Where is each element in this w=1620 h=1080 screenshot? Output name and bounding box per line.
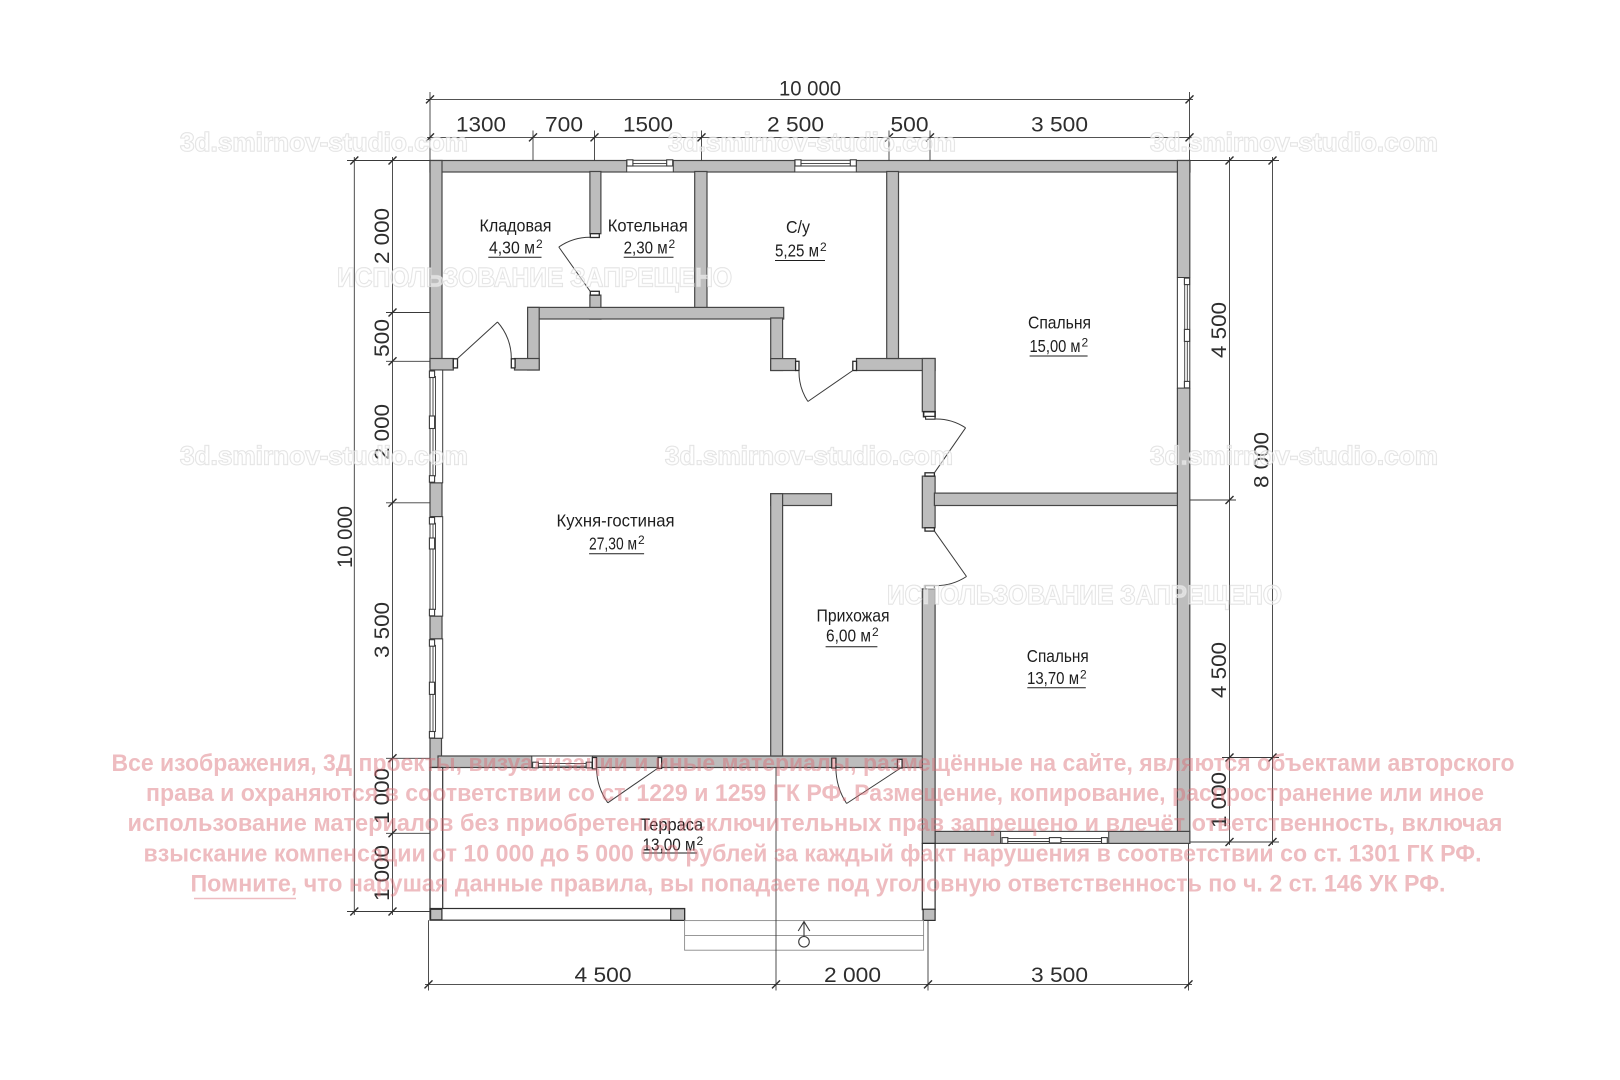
- svg-text:3d.smirnov-studio.com: 3d.smirnov-studio.com: [1150, 441, 1438, 471]
- svg-text:Спальня: Спальня: [1027, 646, 1089, 666]
- svg-text:4 500: 4 500: [1208, 642, 1231, 698]
- svg-text:4 500: 4 500: [575, 964, 632, 987]
- svg-text:взыскание компенсации от 10 00: взыскание компенсации от 10 000 до 5 000…: [144, 841, 1482, 868]
- svg-text:3d.smirnov-studio.com: 3d.smirnov-studio.com: [668, 127, 956, 157]
- svg-text:использование материалов без п: использование материалов без приобретени…: [128, 810, 1503, 837]
- svg-text:5,25 м: 5,25 м: [775, 241, 819, 261]
- svg-text:2 000: 2 000: [371, 208, 394, 264]
- svg-text:2: 2: [1082, 336, 1089, 350]
- svg-text:права и охраняются в соответст: права и охраняются в соответствии со ст.…: [146, 780, 1484, 807]
- svg-text:3d.smirnov-studio.com: 3d.smirnov-studio.com: [1150, 127, 1438, 157]
- svg-text:3d.smirnov-studio.com: 3d.smirnov-studio.com: [665, 441, 953, 471]
- svg-text:3d.smirnov-studio.com: 3d.smirnov-studio.com: [180, 127, 468, 157]
- svg-text:Прихожая: Прихожая: [817, 606, 890, 626]
- svg-text:13,70 м: 13,70 м: [1027, 668, 1079, 688]
- svg-text:2: 2: [820, 240, 827, 254]
- svg-text:10 000: 10 000: [779, 78, 841, 101]
- svg-text:2: 2: [638, 533, 645, 547]
- svg-text:Помните, что нарушая данные пр: Помните, что нарушая данные правила, вы …: [191, 871, 1446, 898]
- svg-text:3 500: 3 500: [1031, 114, 1088, 137]
- svg-text:2 000: 2 000: [824, 964, 881, 987]
- svg-text:2: 2: [872, 625, 879, 639]
- svg-text:Все изображения, 3Д проекты, в: Все изображения, 3Д проекты, визуализаци…: [112, 750, 1515, 777]
- svg-text:ИСПОЛЬЗОВАНИЕ ЗАПРЕЩЕНО: ИСПОЛЬЗОВАНИЕ ЗАПРЕЩЕНО: [887, 580, 1282, 610]
- svg-text:1500: 1500: [623, 114, 673, 137]
- svg-text:Котельная: Котельная: [608, 216, 688, 236]
- svg-text:С/у: С/у: [786, 217, 810, 237]
- svg-text:700: 700: [545, 114, 583, 137]
- svg-text:4 500: 4 500: [1208, 302, 1231, 358]
- svg-text:Спальня: Спальня: [1028, 313, 1091, 333]
- svg-text:27,30 м: 27,30 м: [589, 534, 637, 554]
- svg-text:15,00 м: 15,00 м: [1030, 336, 1081, 356]
- svg-text:3 500: 3 500: [1031, 964, 1088, 987]
- svg-text:10 000: 10 000: [334, 506, 357, 568]
- svg-text:2: 2: [669, 237, 676, 251]
- svg-text:2: 2: [1080, 667, 1087, 681]
- svg-text:2: 2: [536, 237, 543, 251]
- svg-text:3d.smirnov-studio.com: 3d.smirnov-studio.com: [180, 441, 468, 471]
- svg-text:2,30 м: 2,30 м: [624, 238, 668, 258]
- svg-text:ИСПОЛЬЗОВАНИЕ ЗАПРЕЩЕНО: ИСПОЛЬЗОВАНИЕ ЗАПРЕЩЕНО: [337, 263, 732, 293]
- svg-text:Кухня-гостиная: Кухня-гостиная: [557, 511, 675, 531]
- svg-text:Кладовая: Кладовая: [480, 216, 552, 236]
- svg-text:500: 500: [371, 319, 394, 357]
- svg-text:4,30 м: 4,30 м: [489, 238, 535, 258]
- svg-text:6,00 м: 6,00 м: [826, 626, 871, 646]
- svg-text:3 500: 3 500: [371, 602, 394, 658]
